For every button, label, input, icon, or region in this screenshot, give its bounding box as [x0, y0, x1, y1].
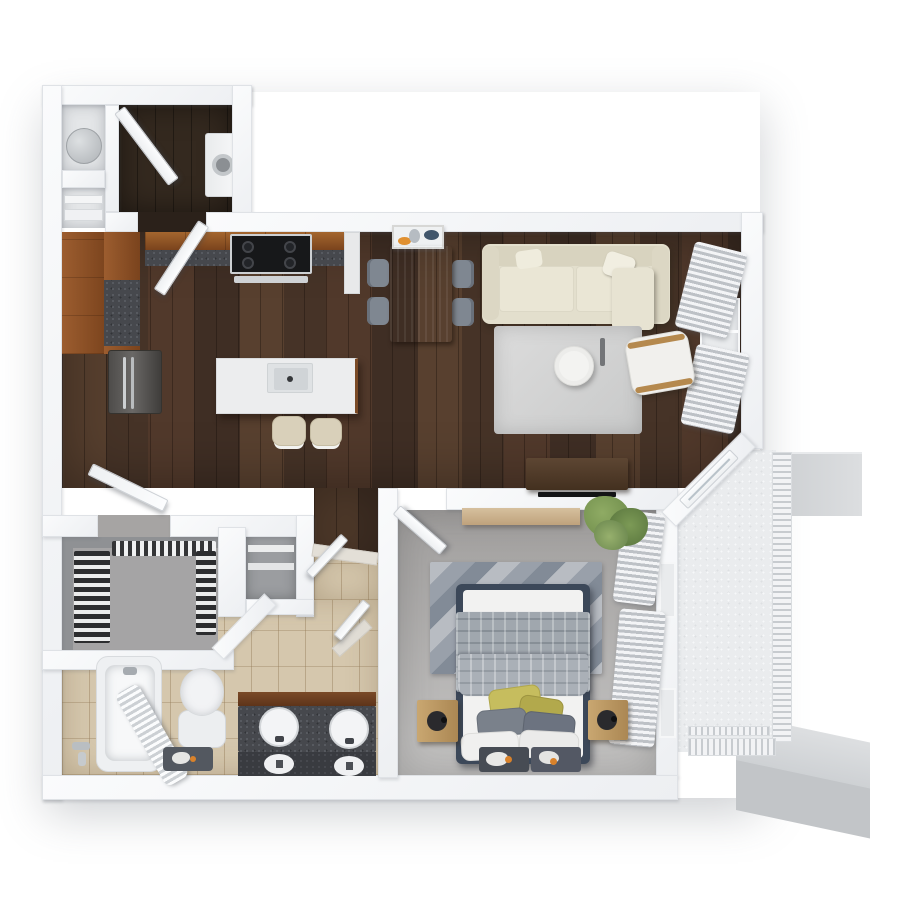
dining-table [390, 246, 452, 342]
sofa-cushion [499, 266, 574, 312]
bedroom-wall-shelf [462, 508, 580, 525]
closet-doorway-gap [98, 515, 170, 537]
tub-faucet [123, 667, 137, 675]
fridge-handle [131, 357, 134, 409]
stove [230, 234, 312, 274]
closet-inner-wall [62, 537, 73, 650]
sofa-back [486, 246, 666, 266]
kitchen-counter-left-run [104, 280, 140, 346]
dining-chair [452, 260, 474, 288]
bath-mat [163, 747, 213, 771]
vanity-counter [238, 706, 376, 752]
wall-utility-divider [105, 105, 119, 212]
hanging-clothes-right [196, 551, 216, 635]
burner [284, 241, 296, 253]
linen-shelf [248, 545, 294, 552]
burner [242, 257, 254, 269]
remote [600, 338, 605, 366]
hanging-clothes-left [74, 551, 110, 643]
storage-closet-floor [62, 186, 105, 228]
wall-closet-linen-divider [218, 527, 246, 617]
washer-door-ring [212, 154, 234, 176]
wall-utility-top [42, 85, 252, 105]
sink-drain [287, 376, 293, 382]
balcony-railing-bottom [688, 738, 776, 756]
foot-rug [479, 747, 529, 772]
fridge-handle [123, 357, 126, 409]
lamp-knob [611, 716, 617, 722]
rug-dot-orange [505, 756, 512, 763]
sink-faucet [345, 738, 354, 744]
burner [242, 241, 254, 253]
storage-shelf [64, 209, 103, 221]
island-sink [267, 363, 313, 393]
floor-plan-render [0, 0, 900, 900]
nightstand [588, 700, 628, 740]
vanity-backsplash [238, 692, 376, 706]
vanity-front [238, 752, 376, 776]
sofa-chaise [612, 268, 654, 330]
kitchen-lower-cabinet [104, 232, 140, 280]
sofa-arm-left [482, 246, 499, 320]
art-navy-shape [424, 230, 439, 240]
bar-stool [310, 418, 342, 446]
lamp-knob [441, 717, 447, 723]
bedroom-window [659, 562, 676, 618]
wall-left-exterior [42, 85, 62, 800]
balcony-railing-right [772, 452, 792, 742]
sofa-pillow [515, 248, 543, 269]
storage-shelf [64, 195, 103, 204]
dining-chair [367, 259, 389, 287]
nightstand [417, 700, 458, 742]
mat-blob-white [172, 752, 190, 764]
shower-fixture [72, 742, 90, 750]
wall-bedroom-left [378, 488, 398, 778]
bowl-faucet [276, 760, 283, 768]
kitchen-island [216, 358, 358, 414]
wall-bottom-exterior [42, 775, 678, 800]
foot-rug [531, 747, 581, 772]
wall-utility-right [232, 85, 252, 232]
mat-dot-orange [190, 756, 196, 762]
shower-fixture [78, 752, 86, 766]
bar-stool [272, 416, 306, 446]
wall-right-living [741, 212, 763, 449]
plant-foliage [594, 520, 628, 550]
dining-chair [452, 298, 474, 326]
sink-faucet [275, 736, 284, 742]
refrigerator [108, 350, 162, 414]
water-heater [66, 128, 102, 164]
wall-closet-top-a [42, 515, 98, 537]
art-gray-shape [409, 229, 420, 243]
bowl-faucet [346, 762, 353, 770]
tv-console [526, 458, 628, 490]
bedroom-window [659, 688, 676, 738]
wall-top-segment [105, 212, 138, 232]
toilet-lid [180, 668, 224, 716]
accent-chair [623, 329, 696, 397]
dining-chair [367, 297, 389, 325]
balcony-drain [688, 726, 770, 736]
stove-front-panel [234, 276, 308, 283]
coffee-table [554, 346, 594, 386]
kitchen-cabinet-end-panel [344, 232, 360, 294]
linen-shelf [248, 563, 294, 570]
sofa-arm-right [652, 246, 669, 322]
rug-dot-orange [550, 758, 557, 765]
kitchen-upper-cabinets-left [62, 232, 108, 354]
burner [284, 257, 296, 269]
wall-top-main [206, 212, 763, 232]
wall-closet-divider [62, 170, 105, 188]
